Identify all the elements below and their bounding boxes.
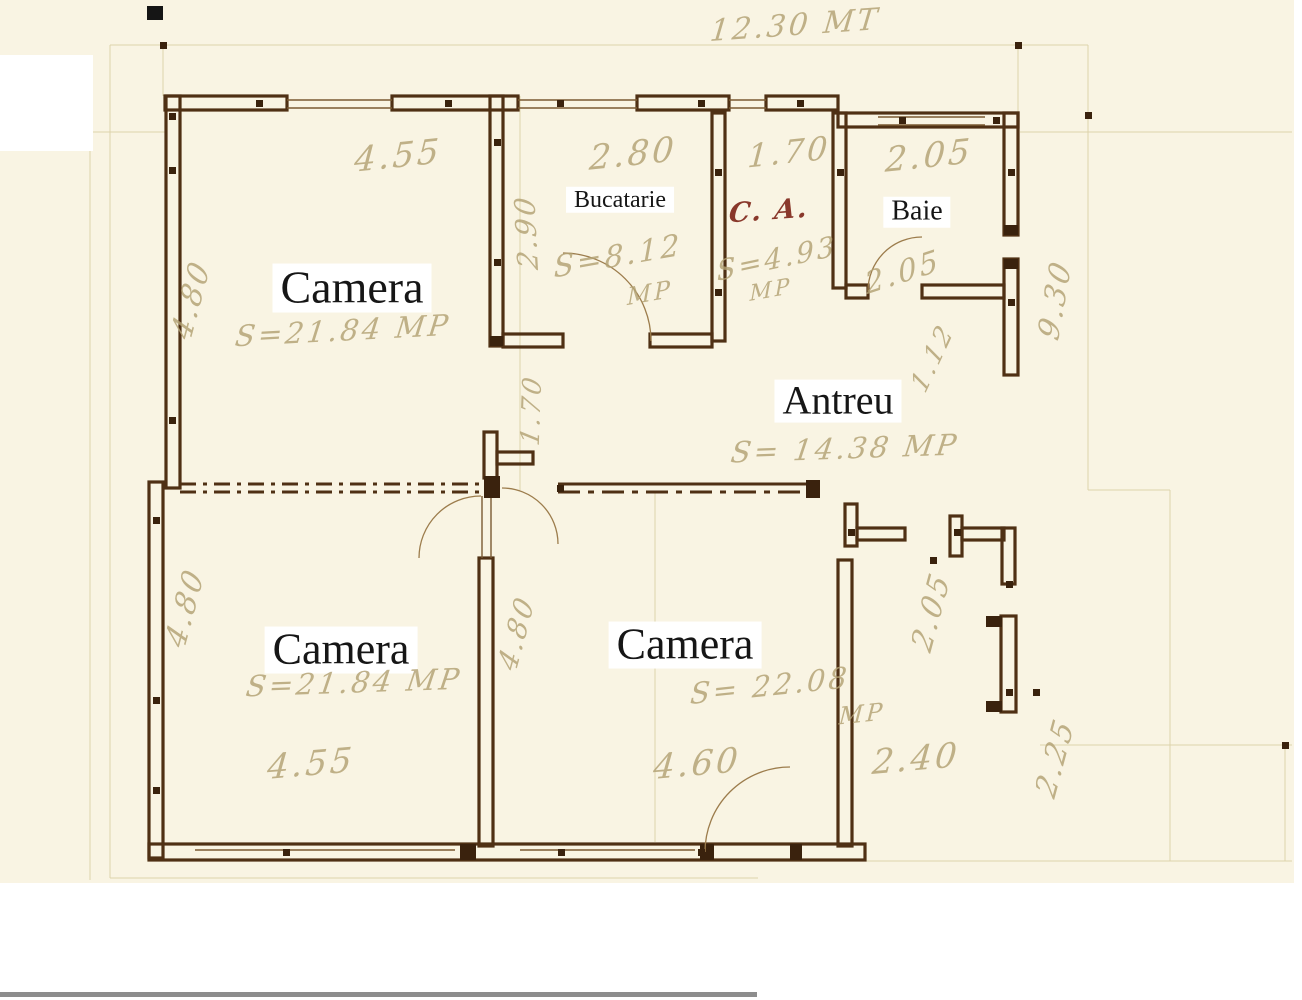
dim-bottom-455: 4.55 bbox=[266, 743, 356, 785]
dim-top-205: 2.05 bbox=[884, 134, 974, 178]
floorplan-page: 12.30 MT 4.55 2.80 1.70 2.05 2.90 1.70 4… bbox=[0, 0, 1302, 1000]
room-area-unit-bucatarie: MP bbox=[627, 277, 673, 309]
dim-bottom-460: 4.60 bbox=[652, 743, 742, 785]
scan-white-bottom bbox=[0, 883, 1302, 1000]
room-label-ca: C. A. bbox=[728, 195, 811, 228]
room-area-unit-camera-bottom-middle: MP bbox=[838, 699, 886, 728]
dim-bottom-240: 2.40 bbox=[871, 738, 961, 780]
dim-top-170: 1.70 bbox=[746, 131, 831, 172]
room-label-camera-bottom-middle: Camera bbox=[609, 622, 762, 669]
dim-inner-290: 2.90 bbox=[511, 193, 543, 271]
room-label-bucatarie: Bucatarie bbox=[566, 187, 674, 213]
room-label-baie: Baie bbox=[883, 197, 950, 228]
room-area-camera-bottom-left: S=21.84 MP bbox=[244, 665, 464, 702]
scan-white-edge bbox=[1294, 0, 1302, 883]
dim-inner-170: 1.70 bbox=[518, 372, 546, 447]
dim-top-280: 2.80 bbox=[588, 132, 678, 176]
room-label-camera-top-left: Camera bbox=[272, 264, 431, 313]
survey-dots bbox=[153, 42, 1289, 856]
dim-top-455: 4.55 bbox=[353, 134, 443, 178]
room-label-antreu: Antreu bbox=[774, 380, 901, 423]
scan-edge-line bbox=[0, 992, 757, 997]
room-area-antreu: S= 14.38 MP bbox=[729, 430, 961, 467]
scan-white-corner bbox=[0, 55, 93, 151]
